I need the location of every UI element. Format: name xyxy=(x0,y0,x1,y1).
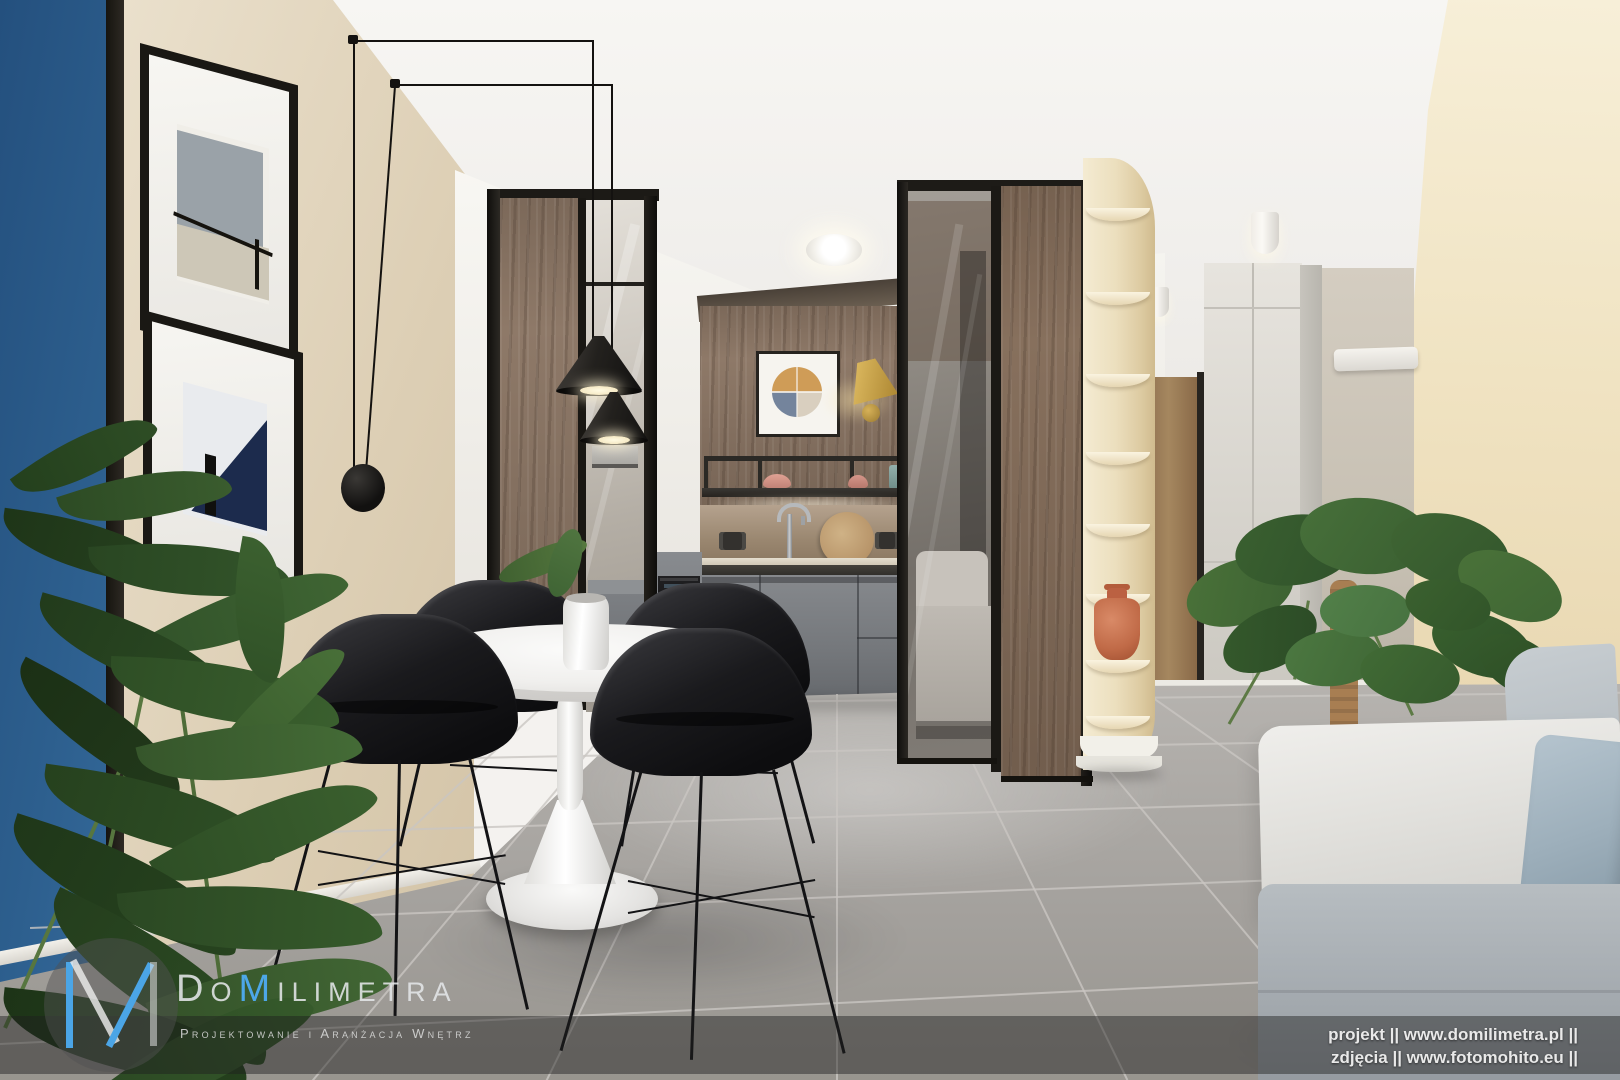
tulip-table-stem xyxy=(557,690,583,810)
kitchen-art-circle xyxy=(772,367,822,417)
wardrobe-seam-top xyxy=(1204,307,1302,309)
range-hood-reflection xyxy=(592,446,638,466)
right-partition-wood-bottom-edge xyxy=(1001,776,1093,782)
counter-reflection xyxy=(588,580,646,594)
art-bottom-navy-triangle xyxy=(183,382,267,537)
faucet-spout xyxy=(801,516,805,525)
right-partition-mid-frame xyxy=(991,186,1001,772)
faucet-riser xyxy=(787,514,792,563)
bedroom-bed-body xyxy=(916,606,992,726)
kitchen-shelf-post-1 xyxy=(704,456,708,492)
cabinet-seam-2 xyxy=(857,575,859,707)
pendant-cord xyxy=(353,42,355,472)
m-monogram-circle-icon xyxy=(44,938,178,1072)
kitchen-art-gap-v xyxy=(796,367,798,417)
curved-shelf-base-shadow xyxy=(1078,768,1162,780)
pendant-bulb-lower xyxy=(598,436,630,444)
brass-wall-sconce-plate xyxy=(862,404,880,422)
power-outlet-left xyxy=(719,532,746,550)
hallway-wall-rail xyxy=(1334,347,1419,372)
power-outlet-right xyxy=(875,532,899,549)
ceiling-spot-cylinder-a xyxy=(1251,212,1279,254)
terracotta-vase-body xyxy=(1094,598,1140,660)
glass-muntin-bar xyxy=(586,282,646,286)
pendant-cord xyxy=(592,41,594,341)
credit-design-url: projekt || www.domilimetra.pl || xyxy=(1000,1023,1578,1046)
chair-seat-pad xyxy=(616,712,794,726)
chair-seat-pad xyxy=(312,700,498,714)
bedroom-bed-shadow xyxy=(916,721,992,739)
art-top-mat xyxy=(149,54,289,361)
white-table-vase-mouth xyxy=(566,593,606,603)
right-partition-bottom-edge xyxy=(897,758,997,764)
credit-photography-url: zdjęcia || www.fotomohito.eu || xyxy=(1000,1046,1578,1069)
kitchen-shelf-post-2 xyxy=(758,456,762,492)
brand-subtitle: Projektowanie i Aranżacja Wnętrz xyxy=(180,1026,474,1041)
apartment-interior-photo: DoMilimetra Projektowanie i Aranżacja Wn… xyxy=(0,0,1620,1080)
brand-wordmark: DoMilimetra xyxy=(176,970,458,1008)
right-partition-glass xyxy=(908,191,993,763)
ceiling-flush-light xyxy=(806,234,862,266)
right-partition-left-frame xyxy=(897,182,908,764)
art-top-image xyxy=(177,124,269,305)
brand-prefix: Do xyxy=(176,968,238,1010)
hood-underside-reflection xyxy=(592,464,638,468)
right-partition-wood-panel xyxy=(1001,186,1083,782)
pendant-cord xyxy=(352,40,594,42)
kitchen-shelf-top-rail xyxy=(704,456,920,461)
brand-suffix: ilimetra xyxy=(277,968,458,1010)
pink-bowl-large xyxy=(763,474,791,489)
m-monogram-stroke-left xyxy=(66,962,73,1048)
photo-credits: projekt || www.domilimetra.pl || zdjęcia… xyxy=(1000,1023,1578,1069)
cabinet-handle-shadow xyxy=(699,577,921,583)
white-table-vase xyxy=(563,596,609,670)
pendant-counterweight-disc xyxy=(341,464,385,512)
m-monogram-stroke-right xyxy=(150,962,157,1046)
brand-accent-letter: M xyxy=(238,968,277,1010)
art-bottom-image xyxy=(183,382,267,537)
monstera-leaf xyxy=(1320,585,1410,637)
kitchen-shelf-board xyxy=(702,488,922,497)
art-top-black-bar xyxy=(255,239,259,290)
pink-bowl-small xyxy=(848,475,868,489)
door-frame xyxy=(1197,372,1204,695)
pendant-cord xyxy=(394,84,613,86)
oven-handle xyxy=(660,578,698,581)
